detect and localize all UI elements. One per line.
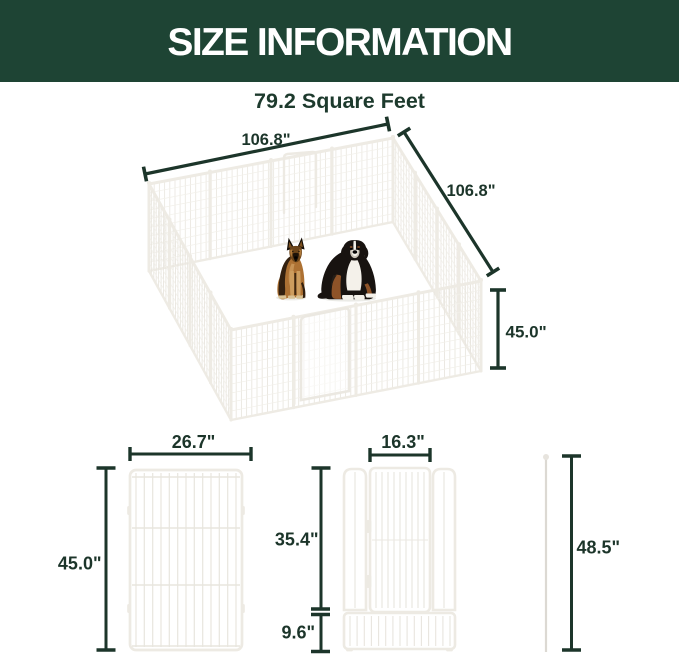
svg-text:106.8": 106.8" xyxy=(446,182,495,200)
svg-text:35.4": 35.4" xyxy=(275,530,319,550)
svg-text:45.0": 45.0" xyxy=(506,323,547,342)
svg-text:26.7": 26.7" xyxy=(172,432,216,452)
svg-text:45.0": 45.0" xyxy=(58,554,102,574)
svg-text:106.8": 106.8" xyxy=(241,131,290,149)
svg-text:16.3": 16.3" xyxy=(381,432,425,452)
svg-text:48.5": 48.5" xyxy=(577,538,621,558)
svg-text:79.2 Square Feet: 79.2 Square Feet xyxy=(254,89,425,113)
svg-text:SIZE INFORMATION: SIZE INFORMATION xyxy=(167,21,511,64)
svg-text:9.6": 9.6" xyxy=(281,623,315,643)
